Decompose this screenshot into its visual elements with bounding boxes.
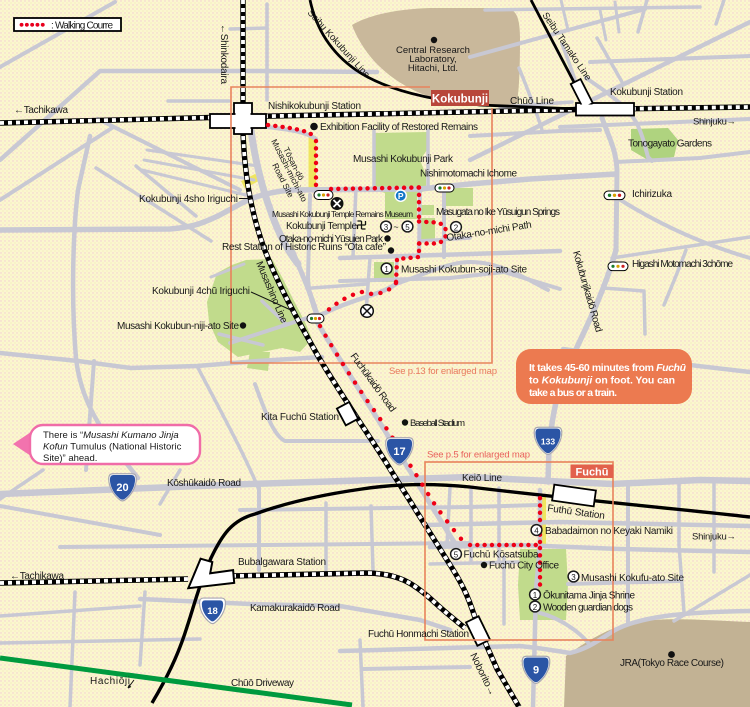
svg-text:Fuchū City Office: Fuchū City Office [489, 561, 559, 572]
svg-text:Site)” ahead.: Site)” ahead. [43, 453, 97, 464]
svg-text:Hachiōji: Hachiōji [90, 676, 130, 687]
svg-text:5: 5 [454, 550, 459, 559]
svg-text:Keiō Line: Keiō Line [462, 473, 502, 484]
svg-text:Kokubunji 4sho Iriguchi: Kokubunji 4sho Iriguchi [139, 194, 238, 205]
svg-text:Chūō Driveway: Chūō Driveway [231, 678, 294, 689]
svg-text:Musashi Kokubunji Park: Musashi Kokubunji Park [353, 154, 454, 165]
svg-text:Rest Station of Historic Ruins: Rest Station of Historic Ruins “Ota cafe… [222, 242, 386, 253]
svg-text:←Tachikawa: ←Tachikawa [10, 571, 64, 582]
svg-text:Chūō Line: Chūō Line [510, 96, 554, 107]
svg-text:~: ~ [393, 222, 398, 232]
svg-text:Musashi Kokufu-ato Site: Musashi Kokufu-ato Site [581, 573, 684, 584]
svg-text:133: 133 [541, 437, 555, 447]
svg-text:Kofun Tumulus (National Histor: Kofun Tumulus (National Historic [43, 442, 182, 453]
svg-text:3: 3 [384, 223, 389, 232]
svg-text:18: 18 [207, 606, 218, 617]
svg-text:Nishikokubunji Station: Nishikokubunji Station [268, 101, 361, 112]
svg-text:Babadaimon no Keyaki Namiki: Babadaimon no Keyaki Namiki [545, 526, 673, 537]
svg-text:3: 3 [571, 573, 576, 582]
svg-text:2: 2 [533, 603, 538, 612]
svg-text:to Kokubunji on foot. You can: to Kokubunji on foot. You can [529, 375, 675, 387]
svg-text:: Walking Courre: : Walking Courre [51, 21, 113, 32]
svg-text:Kokubunji: Kokubunji [432, 94, 488, 106]
svg-text:5: 5 [405, 223, 410, 232]
svg-text:Shinjuku→: Shinjuku→ [692, 532, 736, 543]
svg-text:Higashi Motomachi 3chōme: Higashi Motomachi 3chōme [632, 259, 733, 270]
svg-text:Fuchū: Fuchū [576, 467, 609, 479]
svg-text:Fuchū Honmachi Station: Fuchū Honmachi Station [368, 629, 469, 640]
svg-text:JRA(Tokyo Race Course): JRA(Tokyo Race Course) [620, 658, 724, 669]
svg-text:Exhibition Facility of Restore: Exhibition Facility of Restored Remains [320, 122, 478, 133]
svg-text:Kita Fuchū Station: Kita Fuchū Station [261, 412, 339, 423]
svg-text:20: 20 [116, 482, 128, 494]
svg-text:Hitachi, Ltd.: Hitachi, Ltd. [408, 63, 458, 74]
svg-text:1: 1 [384, 265, 389, 274]
svg-text:←Shinkodaira: ←Shinkodaira [218, 24, 229, 84]
svg-text:Wooden guardian dogs: Wooden guardian dogs [543, 603, 633, 614]
svg-text:Masugata no Ike Yūsuigun Sprin: Masugata no Ike Yūsuigun Springs [436, 207, 560, 218]
svg-text:Tonogayato Gardens: Tonogayato Gardens [628, 139, 712, 150]
svg-text:There is “Musashi Kumano Jinja: There is “Musashi Kumano Jinja [43, 430, 179, 441]
svg-text:Musashi Kokubun-soji-ato Site: Musashi Kokubun-soji-ato Site [401, 265, 527, 276]
svg-text:←Tachikawa: ←Tachikawa [14, 105, 68, 116]
svg-text:17: 17 [393, 446, 405, 458]
svg-text:Musashi Kokubun-niji-ato Site: Musashi Kokubun-niji-ato Site [117, 321, 239, 332]
svg-text:Ōkunitama Jinja Shrine: Ōkunitama Jinja Shrine [543, 590, 635, 602]
svg-text:1: 1 [533, 591, 538, 600]
svg-text:Kokubunji Station: Kokubunji Station [610, 87, 683, 98]
svg-text:P: P [398, 191, 404, 201]
svg-text:Fuchū Kōsatsuba: Fuchū Kōsatsuba [464, 550, 539, 561]
svg-text:Shinjuku→: Shinjuku→ [693, 117, 736, 128]
svg-text:See p.13 for enlarged map: See p.13 for enlarged map [389, 366, 497, 377]
svg-text:It takes 45-60 minutes from Fu: It takes 45-60 minutes from Fuchū [529, 362, 687, 374]
svg-text:Baseball Stadium: Baseball Stadium [410, 418, 465, 429]
svg-text:Kōshūkaidō Road: Kōshūkaidō Road [167, 478, 241, 489]
svg-text:Nishimotomachi Ichome: Nishimotomachi Ichome [420, 169, 517, 180]
svg-text:See p.5 for enlarged map: See p.5 for enlarged map [427, 450, 530, 461]
svg-text:4: 4 [534, 526, 539, 535]
svg-text:Musashi Kokubunji Temple Remai: Musashi Kokubunji Temple Remains Museum [272, 209, 413, 219]
svg-text:take a bus or a train.: take a bus or a train. [529, 387, 617, 399]
svg-text:Ichirizuka: Ichirizuka [632, 189, 672, 200]
svg-text:Kamakurakaidō Road: Kamakurakaidō Road [250, 603, 340, 614]
svg-text:9: 9 [533, 665, 539, 677]
svg-text:Bubalgawara Station: Bubalgawara Station [238, 557, 326, 568]
svg-text:Kokubunji 4chū Iriguchi: Kokubunji 4chū Iriguchi [152, 286, 250, 297]
svg-text:Kokubunji Temple: Kokubunji Temple [286, 221, 357, 232]
